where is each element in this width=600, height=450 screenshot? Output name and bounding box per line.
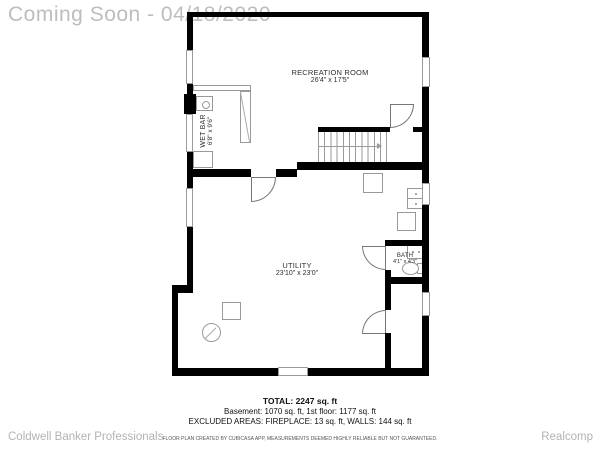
window-rec-left bbox=[186, 50, 193, 84]
label-recreation-room: RECREATION ROOM 26'4" x 17'5" bbox=[250, 68, 410, 84]
window-bottom bbox=[278, 367, 308, 376]
window-laundry-right bbox=[422, 183, 430, 205]
floor-plan-page: Coming Soon - 04/18/2020 bbox=[0, 0, 600, 450]
realcomp-logo-text: Realcomp bbox=[541, 431, 593, 443]
window-utility-left bbox=[186, 188, 193, 227]
chimney-block bbox=[184, 94, 196, 114]
excluded-areas-text: EXCLUDED AREAS: FIREPLACE: 13 sq. ft, WA… bbox=[0, 417, 600, 426]
floor-areas-text: Basement: 1070 sq. ft, 1st floor: 1177 s… bbox=[0, 407, 600, 416]
wall-left-upper bbox=[187, 12, 193, 50]
wall-rec-utility bbox=[276, 169, 297, 177]
brokerage-name: Coldwell Banker Professionals bbox=[8, 431, 163, 443]
wall-top bbox=[187, 12, 429, 17]
wall-bath-bottom bbox=[385, 277, 429, 284]
wall-stairs-south bbox=[297, 162, 429, 170]
room-dims: 26'4" x 17'5" bbox=[250, 77, 410, 84]
door-bath bbox=[362, 246, 386, 270]
stairs-up-arrow-icon bbox=[377, 143, 382, 149]
label-wet-bar: WET BAR 6'8" x 9'6" bbox=[200, 91, 224, 171]
stairs-direction-line bbox=[318, 146, 377, 147]
wall-left bbox=[187, 84, 193, 94]
furnace bbox=[363, 173, 383, 193]
wall-left-utility bbox=[187, 177, 193, 188]
room-name: UTILITY bbox=[237, 261, 357, 270]
wall-right bbox=[422, 12, 429, 57]
room-dims: 6'8" x 9'6" bbox=[207, 91, 214, 171]
water-heater bbox=[397, 212, 416, 231]
room-name: WET BAR bbox=[200, 91, 207, 171]
total-area-text: TOTAL: 2247 sq. ft bbox=[0, 396, 600, 406]
utility-equipment-box bbox=[222, 302, 241, 320]
door-rec-landing bbox=[390, 104, 414, 128]
room-dims: 4'1" x 4'3" bbox=[385, 259, 425, 265]
label-bath: BATH 4'1" x 4'3" bbox=[385, 253, 425, 265]
wall-stairs-north bbox=[318, 127, 390, 132]
door-rec-utility bbox=[251, 177, 276, 202]
wall-left-lower bbox=[172, 293, 178, 376]
window-rec-right bbox=[422, 57, 430, 87]
wall-bottom bbox=[308, 368, 429, 376]
window-lower-right bbox=[422, 292, 430, 316]
wall-right bbox=[422, 316, 429, 376]
wall-jog bbox=[172, 285, 193, 293]
door-storage bbox=[362, 310, 386, 334]
wall-storage-left bbox=[385, 284, 391, 310]
wall-stairs-north bbox=[413, 127, 429, 132]
wall-storage-left bbox=[385, 333, 391, 376]
wall-bottom bbox=[172, 368, 278, 376]
wall-left-utility bbox=[187, 227, 193, 287]
room-name: RECREATION ROOM bbox=[250, 68, 410, 77]
wall-bath-top bbox=[385, 240, 429, 246]
label-utility: UTILITY 23'10" x 23'0" bbox=[237, 261, 357, 277]
room-dims: 23'10" x 23'0" bbox=[237, 270, 357, 277]
window-wetbar-left bbox=[186, 114, 193, 152]
